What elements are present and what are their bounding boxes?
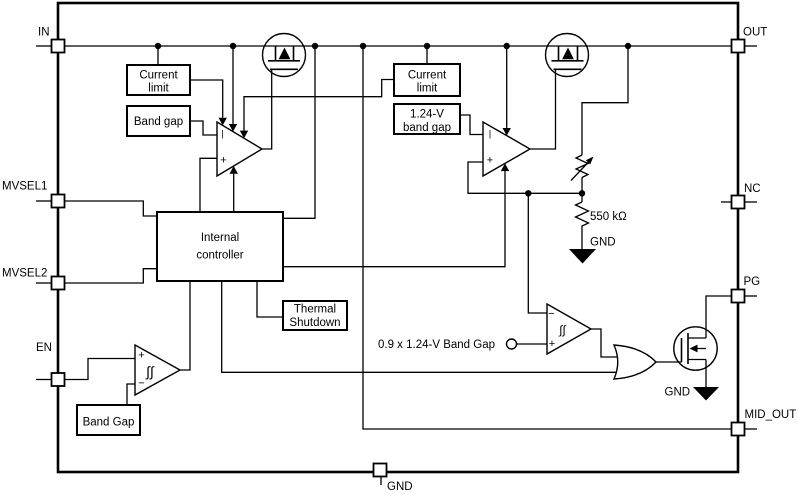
amp1-inverting-marker: |: [221, 129, 223, 140]
junction-dot: [424, 43, 430, 49]
pin-square: [52, 195, 65, 208]
pin-label-en: EN: [36, 342, 52, 354]
pin-mvsel1: [36, 195, 65, 208]
pin-label-mvsel1: MVSEL1: [2, 181, 47, 193]
error-amp1-triangle: [217, 122, 262, 176]
pin-square: [732, 196, 745, 209]
pin-label-gnd: GND: [387, 481, 413, 493]
junction-dot: [312, 43, 318, 49]
diagram-canvas: IN MVSEL1 MVSEL2 EN OUT NC PG MID_OUT GN…: [0, 0, 798, 494]
junction-dot: [504, 43, 510, 49]
amp2-plus-marker: +: [487, 155, 493, 167]
pin-in: [36, 40, 65, 53]
wire-pgcomp-orgate: [591, 329, 618, 357]
encomp-plus-marker: +: [138, 350, 144, 362]
pin-square: [374, 464, 387, 477]
internal-controller-label-1: Internal: [201, 232, 239, 244]
wire-mvsel1-controller: [65, 201, 158, 216]
pgcomp-plus-marker: +: [549, 338, 555, 350]
pin-en: [36, 373, 65, 386]
wire-amp1-plus-controller: [200, 158, 217, 212]
wire-out-feedback-tap: [582, 46, 628, 155]
wire-feedback-pgcomp: [528, 193, 547, 313]
gnd-pgfet-label: GND: [665, 387, 691, 399]
amp-input-arrows: [219, 118, 511, 174]
bandgap-ref-09-label: 0.9 x 1.24-V Band Gap: [378, 339, 495, 351]
current-limit2-label-2: limit: [417, 83, 438, 95]
pin-square: [732, 423, 745, 436]
wire-mvsel2-controller: [65, 269, 158, 283]
pin-label-nc: NC: [744, 183, 761, 195]
thermal-shutdown-label-1: Thermal: [294, 304, 336, 316]
wire-bandgap1-amp1: [190, 121, 217, 135]
pg-fet: [656, 296, 732, 401]
pin-label-in: IN: [38, 27, 50, 39]
junction-dot: [625, 43, 631, 49]
pgcomp-minus-marker: −: [548, 308, 554, 320]
gnd-symbol-divider: [569, 249, 596, 264]
junction-dot: [230, 43, 236, 49]
resistor-550k-label: 550 kΩ: [590, 211, 627, 223]
amp1-plus-marker: +: [220, 155, 226, 167]
wire-bandgap124-amp2: [460, 115, 483, 135]
pin-square: [732, 290, 745, 303]
pin-pg: [732, 290, 758, 303]
band-gap-en-label: Band Gap: [83, 417, 135, 429]
pin-out: [732, 40, 758, 53]
current-limit1-label-1: Current: [139, 70, 178, 82]
wire-currentlimit2-amp1: [244, 80, 394, 131]
internal-controller-box: [157, 212, 283, 281]
junction-dot: [579, 190, 585, 196]
bandgap-ref-terminal: [507, 339, 517, 349]
gnd-divider-label: GND: [590, 237, 616, 249]
pin-label-out: OUT: [743, 27, 767, 39]
wire-encomp-controller: [180, 281, 190, 370]
band-gap124-label-2: band gap: [403, 122, 451, 134]
current-limit1-label-2: limit: [148, 83, 169, 95]
internal-controller-label-2: controller: [196, 250, 243, 262]
pin-square: [52, 40, 65, 53]
resistor-550k-zigzag: [576, 202, 589, 230]
wire-currentlimit1-amp1: [190, 80, 223, 118]
wire-controller-amp2-ref: [283, 171, 505, 267]
band-gap1-label: Band gap: [134, 116, 183, 128]
junction-dot: [360, 43, 366, 49]
pin-square: [52, 373, 65, 386]
pin-mid-out: [732, 423, 758, 436]
wire-amp1-fet1-gate: [262, 69, 272, 149]
junction-dot: [525, 190, 531, 196]
wire-en-comparator: [65, 359, 136, 380]
pin-nc: [721, 196, 757, 209]
or-gate-shape: [614, 345, 656, 379]
junction-dot: [155, 43, 161, 49]
wire-controller-thermal: [257, 281, 283, 317]
band-gap124-label-1: 1.24-V: [410, 109, 444, 121]
amp2-inverting-marker: |: [489, 129, 491, 140]
encomp-minus-marker: −: [138, 378, 144, 390]
thermal-shutdown-label-2: Shutdown: [289, 317, 340, 329]
encomp-hysteresis-icon: ∫∫: [145, 364, 155, 380]
pin-square: [52, 277, 65, 290]
pin-label-mvsel2: MVSEL2: [2, 268, 47, 280]
pin-label-pg: PG: [744, 276, 761, 288]
variable-resistor-arrow-shaft: [571, 162, 589, 181]
gnd-symbol-pgfet: [693, 387, 719, 401]
block-diagram: IN MVSEL1 MVSEL2 EN OUT NC PG MID_OUT GN…: [0, 0, 798, 494]
pin-gnd: [374, 464, 387, 486]
current-limit2-label-1: Current: [408, 70, 447, 82]
pin-label-mid-out: MID_OUT: [745, 409, 797, 421]
wire-bandgapen-comparator: [127, 384, 135, 405]
pgcomp-hysteresis-icon: ∫∫: [558, 323, 566, 337]
wire-amp2-fet2-gate: [530, 69, 556, 149]
pin-square: [732, 40, 745, 53]
